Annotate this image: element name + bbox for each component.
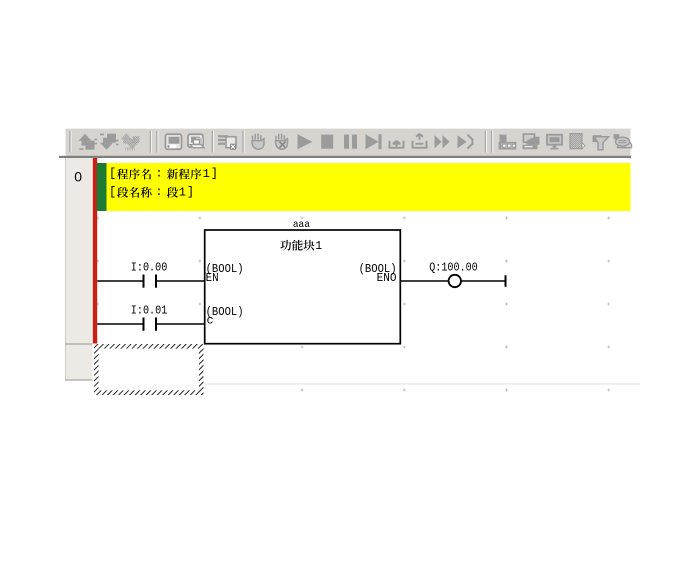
svg-text:1: 1 [179, 186, 186, 200]
svg-text:0: 0 [74, 168, 82, 184]
svg-text:[: [ [109, 185, 116, 199]
svg-text:1: 1 [315, 240, 322, 253]
svg-text:I:0.01: I:0.01 [131, 303, 168, 317]
svg-text::: : [155, 185, 162, 199]
svg-text::: : [155, 167, 162, 181]
svg-text:1: 1 [203, 167, 210, 181]
svg-text:aaa: aaa [293, 219, 310, 231]
svg-text:]: ] [187, 185, 194, 199]
svg-text:]: ] [211, 167, 218, 181]
svg-text:ENO: ENO [377, 271, 397, 285]
svg-text:Q:100.00: Q:100.00 [429, 260, 478, 274]
svg-text:nnn: nnn [125, 146, 135, 153]
svg-text:c: c [207, 314, 214, 328]
svg-text:I:0.00: I:0.00 [131, 260, 168, 274]
svg-text:EN: EN [206, 271, 219, 285]
svg-text:[: [ [109, 167, 116, 181]
